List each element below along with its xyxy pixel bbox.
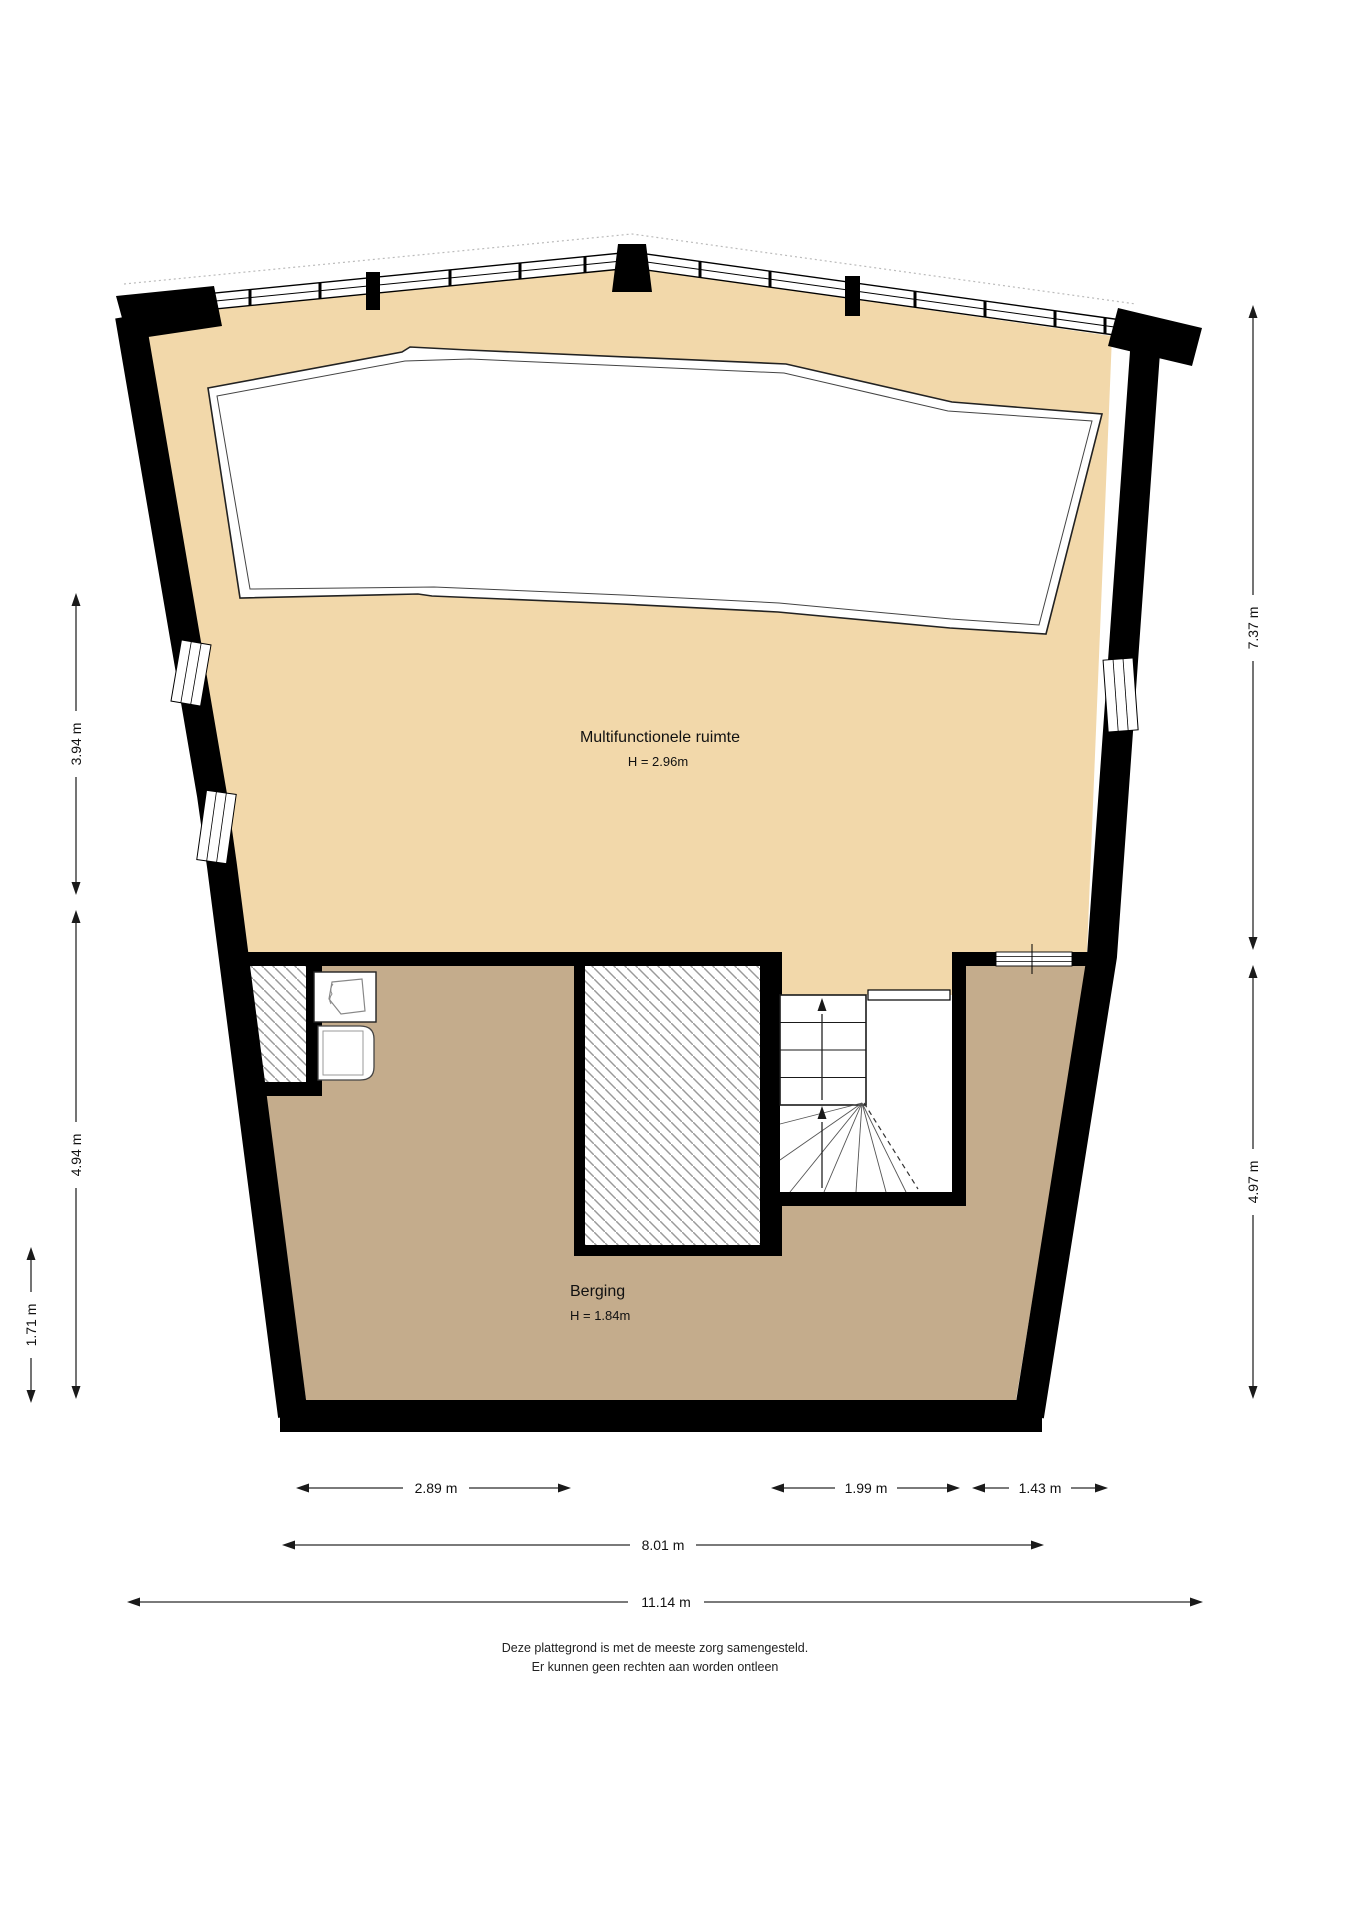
dim-label-494: 4.94 m xyxy=(68,1134,84,1177)
dim-label-737: 7.37 m xyxy=(1245,607,1261,650)
mullion-post-right xyxy=(845,276,860,316)
dim-bottom-801: 8.01 m xyxy=(282,1535,1044,1555)
floorplan-drawing: 3.94 m 4.94 m 1.71 m xyxy=(0,0,1358,1920)
label-room-lower: Berging xyxy=(570,1283,625,1300)
dim-left-494: 4.94 m xyxy=(66,910,86,1399)
floorplan-page: 3.94 m 4.94 m 1.71 m xyxy=(0,0,1358,1920)
sink-fixture xyxy=(314,972,376,1022)
dim-label-289: 2.89 m xyxy=(415,1480,458,1496)
dim-label-171: 1.71 m xyxy=(23,1304,39,1347)
dim-left-394: 3.94 m xyxy=(66,593,86,895)
dim-left-171: 1.71 m xyxy=(21,1247,41,1403)
central-hatched-area xyxy=(574,952,782,1256)
stair-balustrade xyxy=(868,990,950,1000)
dim-right-497: 4.97 m xyxy=(1243,965,1263,1399)
dim-label-143: 1.43 m xyxy=(1019,1480,1062,1496)
label-room-upper: Multifunctionele ruimte xyxy=(580,729,740,746)
dim-right-737: 7.37 m xyxy=(1243,305,1263,950)
dim-bottom-1114: 11.14 m xyxy=(127,1592,1203,1612)
mullion-post-left xyxy=(366,272,380,310)
dim-label-497: 4.97 m xyxy=(1245,1161,1261,1204)
footer-line-2: Er kunnen geen rechten aan worden ontlee… xyxy=(532,1660,779,1674)
dim-bottom-289: 2.89 m xyxy=(296,1478,571,1498)
appliance-fixture xyxy=(318,1026,374,1080)
dim-bottom-143: 1.43 m xyxy=(972,1478,1108,1498)
dim-label-801: 8.01 m xyxy=(642,1537,685,1553)
dim-label-1114: 11.14 m xyxy=(641,1594,691,1610)
label-room-lower-height: H = 1.84m xyxy=(570,1308,630,1323)
dim-bottom-199: 1.99 m xyxy=(771,1478,960,1498)
footer-line-1: Deze plattegrond is met de meeste zorg s… xyxy=(502,1641,808,1655)
dim-label-199: 1.99 m xyxy=(845,1480,888,1496)
footer-disclaimer: Deze plattegrond is met de meeste zorg s… xyxy=(502,1641,808,1674)
window-right xyxy=(1103,658,1138,732)
roof-apex-post xyxy=(612,244,652,292)
dim-label-394: 3.94 m xyxy=(68,723,84,766)
label-room-upper-height: H = 2.96m xyxy=(628,754,688,769)
